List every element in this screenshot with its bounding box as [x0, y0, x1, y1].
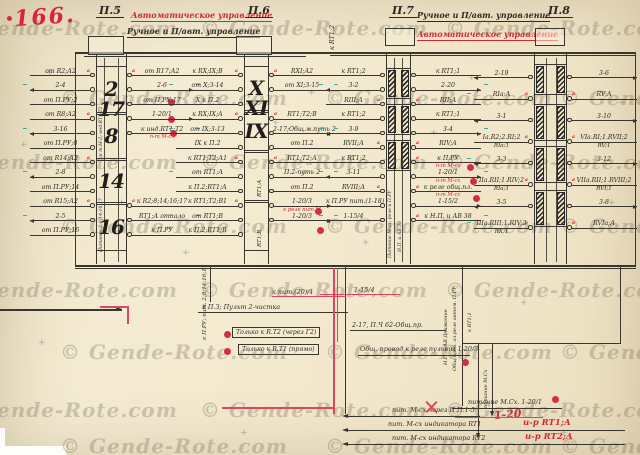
- watermark: © Gende-Rote.com: [0, 278, 178, 302]
- block-divider: [244, 66, 268, 67]
- wire-label: к RT1;1: [415, 111, 481, 118]
- wire-right: 1-15/2: [415, 197, 481, 207]
- red-a-mark: а: [274, 111, 277, 117]
- wire-arrow: [633, 76, 637, 80]
- terminal-dot: [127, 116, 132, 121]
- red-a-mark: а: [235, 111, 238, 117]
- teal-tick: [467, 93, 471, 94]
- wire-left: от RT1;А: [176, 168, 239, 178]
- terminal-dot: [411, 218, 416, 223]
- red-a-mark: а: [235, 68, 238, 74]
- wire-left: RIа;Аа: [474, 90, 529, 100]
- wire-label: 2-8: [30, 169, 91, 176]
- wire-label: к реле общ.пл.: [415, 184, 481, 191]
- block-divider: [96, 204, 126, 205]
- wire-left: от R8;А2а: [30, 110, 91, 120]
- red-a-mark: а: [235, 155, 238, 161]
- wire-right: RVIа;Аа: [571, 219, 637, 229]
- wire-label: RIII;А: [326, 97, 381, 104]
- terminal-dot: [269, 218, 274, 223]
- wire-label: к RT1;Т2;А1: [176, 155, 239, 162]
- scan-edge-white: [0, 446, 66, 455]
- block-divider: [96, 250, 126, 251]
- page-bullet-dot: [7, 16, 12, 21]
- page-number: 166.: [13, 2, 76, 32]
- wire-label: 3-12: [571, 156, 637, 163]
- terminal-dot: [238, 87, 243, 92]
- red-mark-dot: [462, 359, 469, 366]
- red-a-mark: а: [377, 97, 380, 103]
- rail-right: [566, 54, 567, 264]
- teal-tick: [319, 215, 323, 216]
- terminal-dot: [90, 116, 95, 121]
- terminal-dot: [238, 160, 243, 165]
- terminal-dot: [411, 131, 416, 136]
- wire-right: VIа.RI;1.RVII;2аRV;1: [571, 133, 637, 143]
- wire-label: RT1;Т2;В: [273, 111, 331, 118]
- terminal-dot: [380, 73, 385, 78]
- wire-left: от R2;А2а: [30, 66, 91, 76]
- block-divider: [534, 190, 566, 191]
- wire-label: 1-15/4: [326, 213, 381, 220]
- red-mark-dot: [317, 227, 324, 234]
- relay-coil-box: [236, 36, 272, 55]
- wire-right: П.2-путь 2: [273, 168, 331, 178]
- wire-label: от RT1;В: [176, 213, 239, 220]
- note-npav-vertical: Н.П. и АВ Движение: [443, 309, 449, 365]
- red-annotation-line: [100, 306, 128, 308]
- terminal-dot: [380, 87, 385, 92]
- wiring-line: [84, 56, 306, 57]
- wiring-line: [348, 444, 625, 445]
- terminal-dot: [380, 189, 385, 194]
- red-a-mark: а: [416, 184, 419, 190]
- wire-label: 2-4: [30, 82, 91, 89]
- terminal-dot: [528, 204, 533, 209]
- relay-coil-box: [535, 28, 565, 46]
- red-annotation-line: [320, 294, 400, 295]
- red-a-mark: а: [416, 155, 419, 161]
- wire-label: 1-20/3: [273, 213, 331, 220]
- wire-label: 1-20/1: [415, 169, 481, 176]
- red-a-mark: а: [132, 68, 135, 74]
- footer-line3-label: пит. М-сх индикатора RT2: [392, 434, 485, 442]
- teal-tick: [319, 128, 323, 129]
- wire-right: 3-4: [415, 124, 481, 134]
- wire-arrow: [633, 119, 637, 123]
- block-divider: [244, 200, 268, 201]
- block-divider: [386, 140, 410, 141]
- relay-contact-hatch: [401, 70, 409, 97]
- watermark: © Gende-Rote.com: [0, 398, 178, 422]
- terminal-dot: [380, 218, 385, 223]
- wiring-line: [75, 268, 636, 269]
- red-a-mark: а: [525, 177, 528, 183]
- wire-arrow: [633, 162, 637, 166]
- wire-label: 3-3: [474, 156, 529, 163]
- wire-right: к реле общ.пл.ап-т М-сх: [415, 182, 481, 192]
- red-a-mark: а: [525, 220, 528, 226]
- wire-label: от П.2: [273, 140, 331, 147]
- wire-left: от П.РУ;14: [30, 182, 91, 192]
- teal-tick: [23, 84, 27, 85]
- relay-block-number: 2 17: [93, 79, 129, 119]
- wire-sublabel: RIа;1: [474, 186, 529, 192]
- wiring-line: [0, 309, 122, 311]
- terminal-dot: [269, 73, 274, 78]
- block-divider: [96, 158, 126, 159]
- wire-label: RVII;А: [326, 140, 381, 147]
- relay-contact-hatch: [388, 106, 396, 133]
- red-a-mark: а: [416, 140, 419, 146]
- wiring-line: [358, 355, 470, 356]
- wire-label: от П.РУ;16: [30, 227, 91, 234]
- wiring-line: [452, 408, 562, 409]
- relay-coil-box: [88, 36, 124, 55]
- terminal-dot: [238, 189, 243, 194]
- terminal-dot: [567, 118, 572, 123]
- rail-right: [410, 54, 411, 264]
- panel-title-2: П.6: [245, 4, 273, 18]
- arrow-left: [342, 442, 348, 446]
- red-a-mark: а: [572, 177, 575, 183]
- pencil-plus-mark: +: [182, 248, 190, 258]
- wire-right: RII;Аа: [415, 95, 481, 105]
- relay-block-number: IХ: [241, 121, 271, 141]
- terminal-dot: [238, 232, 243, 237]
- teal-tick: [23, 128, 27, 129]
- wire-arrow: [474, 76, 478, 80]
- wire-left: к RT1;Т2;В1а: [176, 197, 239, 207]
- wiring-line: [620, 266, 621, 344]
- wire-right: 3-6: [571, 68, 637, 78]
- terminal-dot: [127, 102, 132, 107]
- red-a-mark: а: [87, 155, 90, 161]
- wire-left: 3-16: [30, 124, 91, 134]
- terminal-dot: [90, 218, 95, 223]
- wire-right: от ХI;3-15: [273, 81, 331, 91]
- terminal-dot: [528, 161, 533, 166]
- block-divider: [96, 160, 126, 161]
- wire-label: IIа.RII;1.RIV;2: [474, 177, 529, 184]
- wire-label: RIа;А: [474, 91, 529, 98]
- terminal-dot: [90, 160, 95, 165]
- terminal-dot: [238, 102, 243, 107]
- wire-label: 3-16: [30, 126, 91, 133]
- wire-label: от ХI;3-15: [273, 82, 331, 89]
- caption-manual-right: Ручное и П/авт. управление: [417, 10, 550, 22]
- wire-left: к RT1;2: [326, 110, 381, 120]
- terminal-dot: [90, 145, 95, 150]
- terminal-dot: [380, 174, 385, 179]
- note-2-17-obsh: 2-17, П.Ч 62-Общ.пр.: [352, 321, 423, 329]
- wire-label: 1-15/2: [415, 198, 481, 205]
- arrow-down: [476, 433, 480, 439]
- relay-contact-hatch: [401, 106, 409, 133]
- block-divider: [534, 64, 566, 65]
- wire-right: RV;Аа: [571, 90, 637, 100]
- relay-contact-hatch: [536, 66, 544, 93]
- block-divider: [386, 170, 410, 171]
- terminal-dot: [567, 75, 572, 80]
- schematic-sheet: 166. Автоматическое управление Ручное и …: [0, 0, 640, 455]
- terminal-dot: [269, 87, 274, 92]
- terminal-dot: [528, 225, 533, 230]
- wire-label: 2-17;Общ.м.путь 2: [273, 126, 331, 133]
- block-divider: [386, 98, 410, 99]
- teal-tick: [484, 215, 488, 216]
- wire-label: 3-11: [326, 169, 381, 176]
- wiring-line: [330, 55, 636, 56]
- scan-edge-white2: [0, 428, 5, 455]
- terminal-dot: [528, 96, 533, 101]
- terminal-dot: [528, 118, 533, 123]
- wire-label: к П.РУ: [415, 155, 481, 162]
- wire-left: RVII;Аа: [326, 139, 381, 149]
- wire-label: IIIа.RIII;1.RIV;2: [474, 220, 529, 227]
- wire-label: П.2-путь 2: [273, 169, 331, 176]
- terminal-dot: [238, 218, 243, 223]
- wire-label: RХI;А2: [273, 68, 331, 75]
- wire-label: от П.РУ;14: [30, 184, 91, 191]
- terminal-dot: [238, 116, 243, 121]
- wire-arrow: [30, 219, 34, 223]
- wiring-line: [75, 52, 636, 54]
- red-a-mark: а: [377, 140, 380, 146]
- wire-sublabel: RV;1: [571, 143, 637, 149]
- wiring-line: [348, 430, 625, 431]
- relay-block-vlabel: RT1;В: [257, 230, 263, 247]
- wire-left: к П.РУ пит.(1-18): [326, 197, 381, 207]
- relay-block-number: 16: [93, 217, 129, 237]
- note-to-rt12-vertical: к RT1;2: [328, 25, 336, 50]
- relay-contact-hatch: [557, 106, 565, 139]
- wiring-line: [462, 266, 463, 406]
- red-a-mark: а: [132, 198, 135, 204]
- terminal-dot: [90, 203, 95, 208]
- block-divider: [534, 146, 566, 147]
- relay-contact-hatch: [401, 142, 409, 169]
- wire-left: от П.РУ;2: [30, 95, 91, 105]
- wire-left: IIа.RII;1.RIV;2аRIа;1: [474, 176, 529, 186]
- pencil-plus-mark: +: [20, 140, 28, 150]
- block-divider: [244, 202, 268, 203]
- wire-left: 1-15/4: [326, 211, 381, 221]
- footer-line2-red-label: и-р RT1;А: [523, 418, 571, 428]
- relay-contact-hatch: [388, 70, 396, 97]
- wire-label: от R8;А2: [30, 111, 91, 118]
- wire-right: от П.2: [273, 139, 331, 149]
- block-divider: [244, 112, 268, 113]
- wire-arrow: [326, 132, 330, 136]
- note-obsh-prov-vertical: Общ.пров. эл.реле автом. П.РУ: [452, 286, 458, 371]
- wire-left: от П.РУ;8: [30, 139, 91, 149]
- teal-tick: [169, 84, 173, 85]
- block-divider: [534, 182, 566, 183]
- rail-inner: [546, 58, 547, 262]
- wire-right: VIIа.RII;1.RVIII;2аRVI;1: [571, 176, 637, 186]
- wire-left: от IХ;3-13: [176, 124, 239, 134]
- terminal-dot: [380, 145, 385, 150]
- wire-arrow: [326, 175, 330, 179]
- wire-right: к П.РУап-т М-сх: [415, 153, 481, 163]
- wire-label: от П.РУ;2: [30, 97, 91, 104]
- wiring-line: [75, 265, 636, 267]
- wiring-line: [492, 343, 493, 413]
- pencil-plus-mark: +: [118, 198, 126, 208]
- terminal-dot: [380, 203, 385, 208]
- terminal-dot: [528, 139, 533, 144]
- red-a-mark: а: [274, 155, 277, 161]
- wire-left: 2-19: [474, 68, 529, 78]
- wire-left: к RХ;IХ;Аа: [176, 110, 239, 120]
- wire-label: IХ к П.2: [176, 140, 239, 147]
- wire-right: 2-20: [415, 81, 481, 91]
- note-k-pit: к пит.(20)/1: [272, 288, 314, 296]
- arrow-left: [342, 428, 348, 432]
- wiring-line: [345, 266, 346, 414]
- teal-tick: [484, 171, 488, 172]
- terminal-dot: [127, 73, 132, 78]
- teal-tick: [23, 215, 27, 216]
- red-a-mark: а: [416, 97, 419, 103]
- block-divider: [534, 226, 566, 227]
- wire-arrow: [474, 162, 478, 166]
- wire-arrow: [30, 88, 34, 92]
- wire-right: к RT1;1: [415, 66, 481, 76]
- terminal-dot: [127, 232, 132, 237]
- terminal-dot: [380, 160, 385, 165]
- wire-left: 3-5: [474, 197, 529, 207]
- terminal-dot: [127, 203, 132, 208]
- terminal-dot: [567, 96, 572, 101]
- wire-label: 3-1: [474, 113, 529, 120]
- wire-label: VIа.RI;1.RVII;2: [571, 134, 637, 141]
- wire-label: 3-2: [326, 82, 381, 89]
- terminal-dot: [238, 73, 243, 78]
- red-annotation-line: [272, 296, 346, 297]
- red-annotation-line: [337, 268, 338, 342]
- wire-label: RII;А: [415, 97, 481, 104]
- red-a-mark: а: [525, 91, 528, 97]
- wire-label: RV;А: [571, 91, 637, 98]
- wire-left: 2-4: [30, 81, 91, 91]
- wiring-line: [462, 343, 620, 344]
- wire-left: от Х;3-14: [176, 81, 239, 91]
- wire-label: к RT1;Т2;В1: [176, 198, 239, 205]
- terminal-dot: [380, 131, 385, 136]
- wire-label: Iа.R2;2.RI;2: [474, 134, 529, 141]
- wire-sublabel: RХ;1: [474, 229, 529, 235]
- teal-tick: [319, 171, 323, 172]
- block-divider: [386, 104, 410, 105]
- relay-contact-hatch: [536, 192, 544, 225]
- wire-label: 3-9: [326, 126, 381, 133]
- terminal-dot: [90, 87, 95, 92]
- terminal-dot: [567, 204, 572, 209]
- block-divider: [244, 150, 268, 151]
- red-mark-dot: [224, 348, 231, 355]
- pencil-plus-mark: +: [38, 338, 46, 348]
- wire-label: 3-10: [571, 113, 637, 120]
- wire-label: к RT1;1: [415, 68, 481, 75]
- wire-label: к Н.П. и АВ 38: [415, 213, 481, 220]
- wire-label: 1-20/3: [273, 198, 331, 205]
- wire-left: к RT1;Т2;А1а: [176, 153, 239, 163]
- block-divider: [96, 114, 126, 115]
- wire-left: Iа.R2;2.RI;2аRIа;1: [474, 133, 529, 143]
- wire-label: от R14;А2: [30, 155, 91, 162]
- wire-right: к Н.П. и АВ 38а: [415, 211, 481, 221]
- teal-tick: [169, 215, 173, 216]
- red-a-mark: а: [87, 111, 90, 117]
- wire-right: RХI;А2а: [273, 66, 331, 76]
- wire-right: 1-20/1п-т М-сх: [415, 168, 481, 178]
- wire-arrow: [474, 205, 478, 209]
- terminal-dot: [127, 218, 132, 223]
- relay-contact-hatch: [557, 192, 565, 225]
- wire-right: 3-10: [571, 111, 637, 121]
- terminal-dot: [411, 116, 416, 121]
- terminal-dot: [411, 73, 416, 78]
- block-divider: [534, 94, 566, 95]
- wire-label: RVIа;А: [571, 220, 637, 227]
- block-divider: [386, 134, 410, 135]
- wire-label: 2-20: [415, 82, 481, 89]
- wire-right: RT1;Т2;Аа: [273, 153, 331, 163]
- wire-left: 3-11: [326, 168, 381, 178]
- wire-left: 2-5: [30, 211, 91, 221]
- panel-title-3: П.7: [389, 4, 417, 18]
- wire-left: к RХ;IХ;Ва: [176, 66, 239, 76]
- wire-label: от П.РУ;8: [30, 140, 91, 147]
- terminal-dot: [269, 160, 274, 165]
- wire-left: 3-3: [474, 154, 529, 164]
- terminal-dot: [90, 189, 95, 194]
- footer-right-label: питание М.Сх. 1-20/1: [468, 398, 542, 406]
- teal-tick: [319, 84, 323, 85]
- wire-left: к RT1;2: [326, 153, 381, 163]
- wire-label: к П.2;RT1;В: [176, 227, 239, 234]
- wire-label: к П.2;RT1;А: [176, 184, 239, 191]
- red-annotation-line: [333, 268, 335, 414]
- relay-contact-hatch: [557, 66, 565, 93]
- terminal-dot: [269, 189, 274, 194]
- note-1-15-4: 1-15/4: [354, 286, 375, 294]
- red-mark-dot: [552, 396, 559, 403]
- terminal-dot: [127, 87, 132, 92]
- terminal-dot: [567, 225, 572, 230]
- teal-tick: [484, 84, 488, 85]
- red-a-mark: а: [572, 91, 575, 97]
- relay-contact-hatch: [536, 148, 544, 181]
- wiring-line: [350, 330, 446, 331]
- wire-label: к RХ;IХ;В: [176, 68, 239, 75]
- wire-label: RT1;Т2;А: [273, 155, 331, 162]
- wire-label: 2-19: [474, 70, 529, 77]
- wiring-line: [210, 266, 211, 302]
- pencil-plus-mark: +: [362, 238, 370, 248]
- wire-label: к П.РУ пит.(1-18): [326, 198, 381, 205]
- wire-left: IХ к П.2: [176, 139, 239, 149]
- watermark: © Gende-Rote.com: [60, 434, 288, 455]
- red-a-mark: а: [235, 198, 238, 204]
- relay-contact-hatch: [536, 106, 544, 139]
- pencil-plus-mark: +: [520, 298, 528, 308]
- wire-right: 3-12: [571, 154, 637, 164]
- terminal-dot: [269, 131, 274, 136]
- terminal-dot: [238, 145, 243, 150]
